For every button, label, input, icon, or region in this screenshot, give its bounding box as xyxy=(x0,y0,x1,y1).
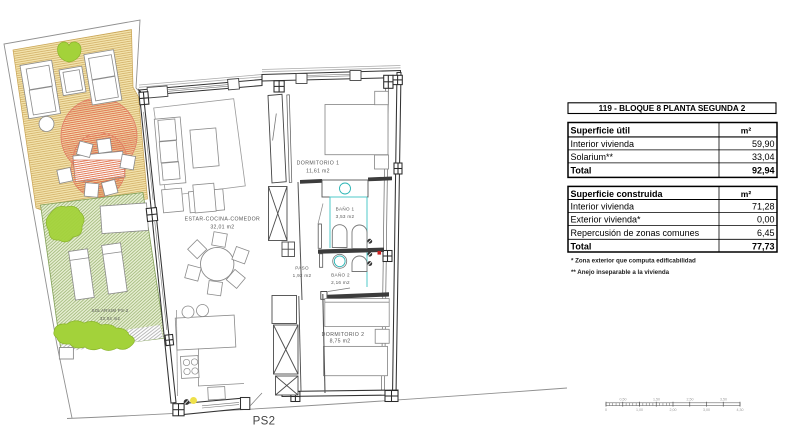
svg-text:Interior vivienda: Interior vivienda xyxy=(571,139,635,149)
svg-text:** Anejo inseparable a la vivi: ** Anejo inseparable a la vivienda xyxy=(571,269,670,276)
svg-text:ESTAR-COCINA-COMEDOR: ESTAR-COCINA-COMEDOR xyxy=(185,217,261,223)
svg-text:Total: Total xyxy=(571,241,592,251)
svg-text:SOLARIUM PS-2: SOLARIUM PS-2 xyxy=(91,308,128,313)
svg-text:71,28: 71,28 xyxy=(752,202,775,212)
svg-text:33,04 m2: 33,04 m2 xyxy=(100,316,121,321)
svg-text:8,75 m2: 8,75 m2 xyxy=(330,339,351,345)
svg-text:0,50: 0,50 xyxy=(620,398,627,402)
svg-text:* Zona exterior que computa ed: * Zona exterior que computa edificabilid… xyxy=(571,258,696,265)
svg-text:0,00: 0,00 xyxy=(757,215,775,225)
svg-text:33,04: 33,04 xyxy=(752,152,775,162)
svg-text:59,90: 59,90 xyxy=(752,139,775,149)
svg-text:3,00: 3,00 xyxy=(703,408,710,412)
svg-text:Superficie construida: Superficie construida xyxy=(571,189,664,199)
svg-text:4,30: 4,30 xyxy=(737,408,744,412)
svg-text:0: 0 xyxy=(605,408,607,412)
svg-text:119 - BLOQUE 8 PLANTA SEGUNDA: 119 - BLOQUE 8 PLANTA SEGUNDA 2 xyxy=(599,104,746,113)
svg-text:Total: Total xyxy=(571,166,592,176)
svg-text:1,50: 1,50 xyxy=(653,398,660,402)
svg-text:2,16 m2: 2,16 m2 xyxy=(331,280,350,285)
svg-text:DORMITORIO 2: DORMITORIO 2 xyxy=(322,332,365,338)
svg-text:m²: m² xyxy=(741,189,752,199)
svg-text:1,00: 1,00 xyxy=(636,408,643,412)
svg-text:Exterior vivienda*: Exterior vivienda* xyxy=(571,215,642,225)
svg-text:11,61 m2: 11,61 m2 xyxy=(306,169,330,175)
svg-text:92,94: 92,94 xyxy=(752,166,775,176)
svg-text:77,73: 77,73 xyxy=(752,241,775,251)
svg-text:3,50: 3,50 xyxy=(720,398,727,402)
svg-text:Superficie útil: Superficie útil xyxy=(571,126,631,136)
svg-text:DORMITORIO 1: DORMITORIO 1 xyxy=(297,161,340,167)
svg-text:Interior vivienda: Interior vivienda xyxy=(571,202,635,212)
svg-text:3,53 m2: 3,53 m2 xyxy=(336,214,355,219)
svg-text:Solarium**: Solarium** xyxy=(571,152,614,162)
svg-text:2,50: 2,50 xyxy=(687,398,694,402)
svg-text:BAÑO 1: BAÑO 1 xyxy=(336,206,355,212)
svg-text:PS2: PS2 xyxy=(253,416,276,428)
svg-text:PASO: PASO xyxy=(295,266,309,271)
svg-text:2,00: 2,00 xyxy=(670,408,677,412)
svg-text:32,01 m2: 32,01 m2 xyxy=(210,225,234,231)
svg-text:m²: m² xyxy=(741,126,752,136)
svg-text:Repercusión de zonas comunes: Repercusión de zonas comunes xyxy=(571,228,700,238)
svg-text:BAÑO 2: BAÑO 2 xyxy=(331,272,350,278)
svg-text:6,45: 6,45 xyxy=(757,228,775,238)
svg-text:1,92 m2: 1,92 m2 xyxy=(293,273,312,278)
